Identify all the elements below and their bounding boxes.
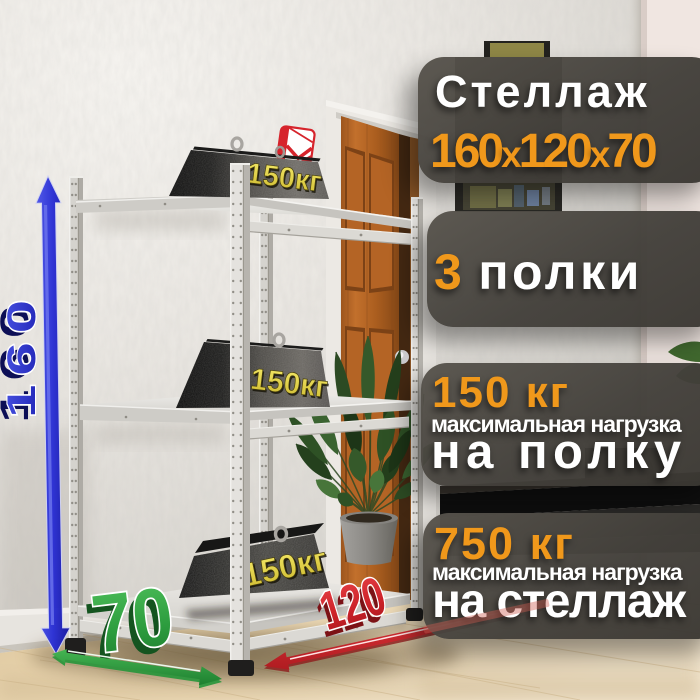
svg-text:160: 160 xyxy=(0,291,44,418)
